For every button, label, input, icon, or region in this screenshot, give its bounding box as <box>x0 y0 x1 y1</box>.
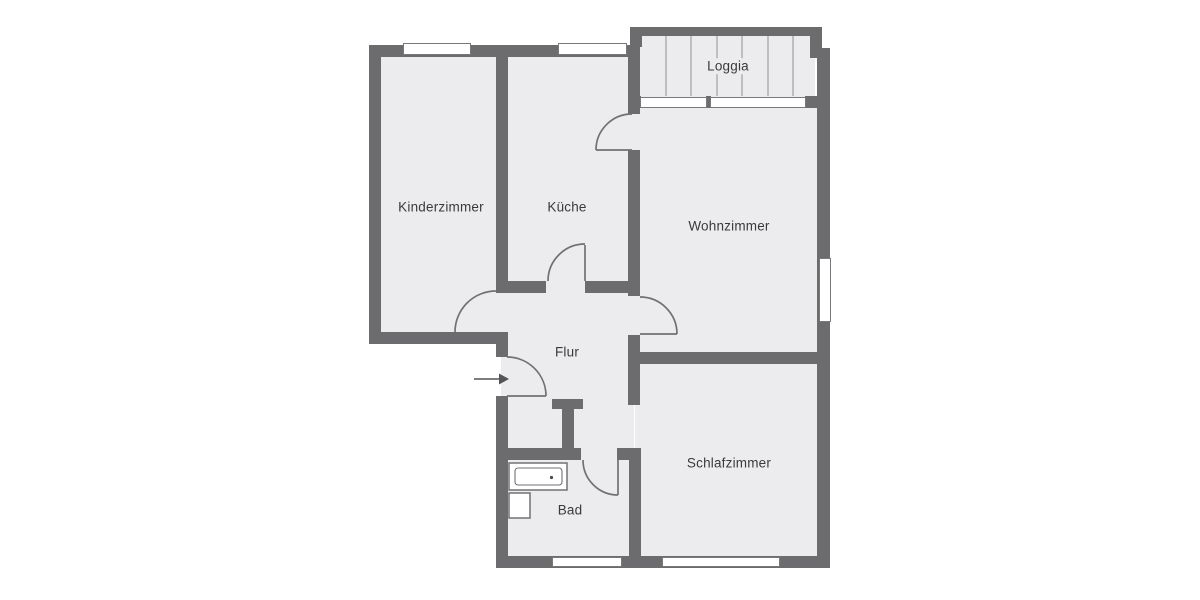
room-label-flur: Flur <box>555 345 579 359</box>
kueche-door-arc <box>548 244 585 281</box>
plan-symbols-layer <box>0 0 1200 600</box>
bathtub-drain-dot <box>550 476 553 479</box>
bathtub-icon <box>509 463 567 490</box>
kueche-wohnzimmer-door-arc <box>596 114 632 150</box>
bad-door-arc <box>583 460 618 495</box>
room-label-schlafzimmer: Schlafzimmer <box>687 456 771 470</box>
entrance-arrow-icon <box>474 374 509 385</box>
entrance-door-arc <box>507 357 546 396</box>
kinderzimmer-door-arc <box>455 291 496 332</box>
room-label-wohnzimmer: Wohnzimmer <box>688 219 769 233</box>
floor-plan: Kinderzimmer Küche Loggia Wohnzimmer Flu… <box>0 0 1200 600</box>
washbasin-icon <box>509 493 530 518</box>
room-label-kueche: Küche <box>547 200 586 214</box>
floor-plan-page: { "plan": { "type": "apartment-floor-pla… <box>0 0 1200 600</box>
wohnzimmer-door-arc <box>640 297 677 334</box>
room-label-loggia: Loggia <box>703 58 753 74</box>
entrance-arrow-head <box>499 374 509 385</box>
bathtub-outline <box>509 463 567 490</box>
room-label-kinderzimmer: Kinderzimmer <box>398 200 484 214</box>
room-label-bad: Bad <box>558 503 583 517</box>
